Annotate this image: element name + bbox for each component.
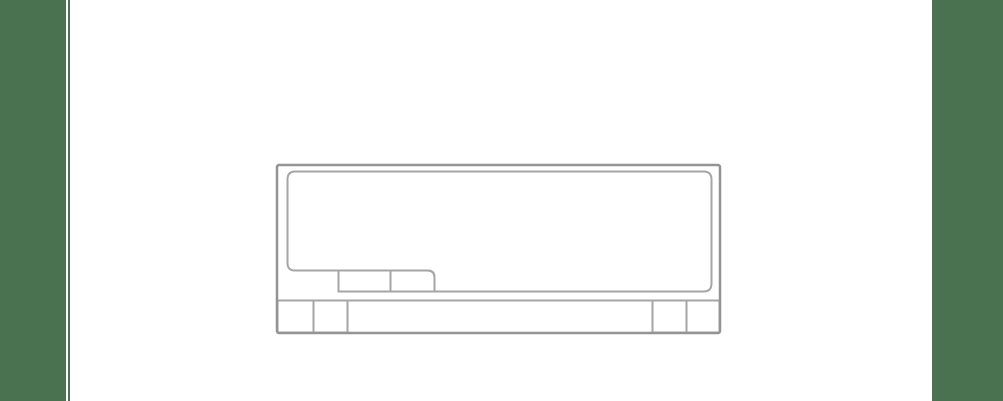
outer-frame — [277, 165, 720, 333]
foot-left-inner — [314, 301, 348, 333]
main-panel — [288, 172, 712, 292]
foot-right-outer — [687, 301, 720, 333]
foot-right-inner — [653, 301, 687, 333]
hatch-left — [339, 271, 391, 292]
appliance-line-drawing — [0, 0, 1003, 401]
page-canvas — [0, 0, 1003, 401]
hatch-right — [391, 271, 435, 292]
foot-left-outer — [278, 301, 314, 333]
